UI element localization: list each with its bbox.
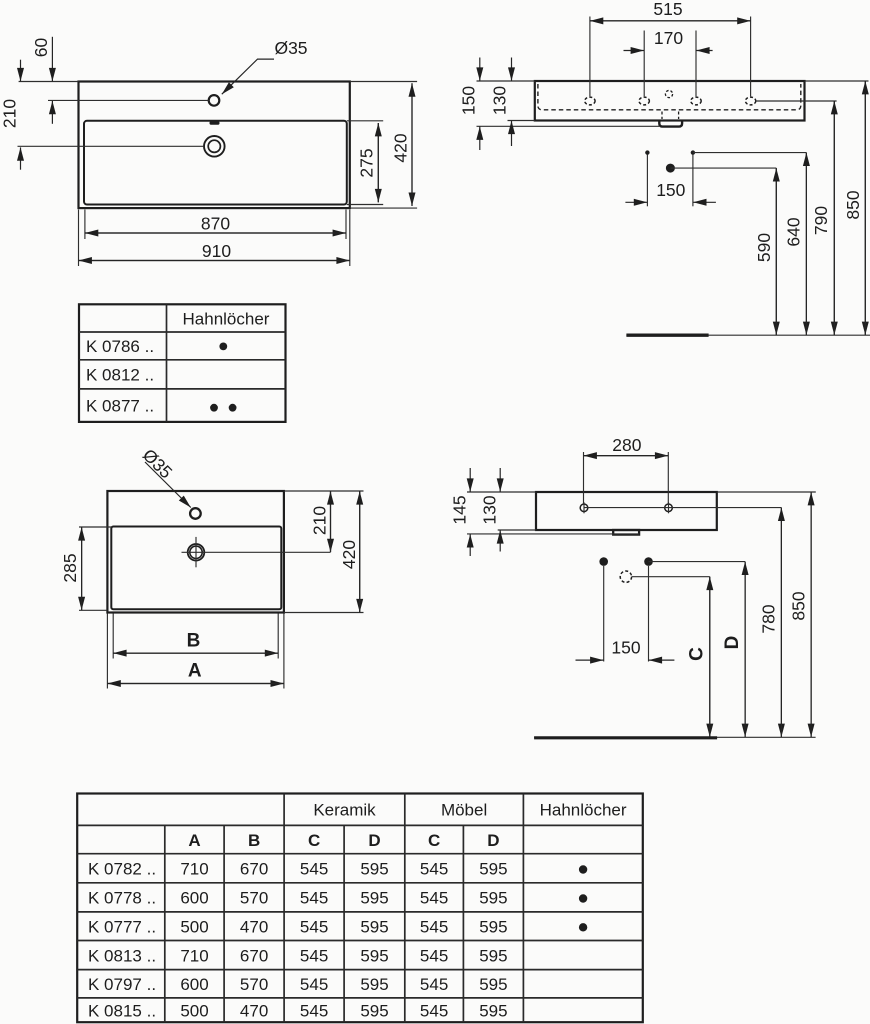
svg-text:K 0797 ..: K 0797 .. [88,975,156,994]
svg-text:595: 595 [360,889,388,908]
svg-text:545: 545 [420,917,448,936]
svg-text:600: 600 [180,889,208,908]
svg-text:A: A [188,831,200,850]
svg-text:850: 850 [789,591,809,620]
svg-text:150: 150 [611,638,640,658]
svg-text:280: 280 [612,435,641,455]
svg-text:420: 420 [339,540,359,569]
svg-text:B: B [187,630,201,651]
svg-text:Ø35: Ø35 [274,38,307,58]
svg-text:545: 545 [300,1001,328,1020]
svg-text:545: 545 [300,889,328,908]
svg-text:285: 285 [60,553,80,582]
svg-text:Möbel: Möbel [441,801,487,820]
svg-text:670: 670 [240,860,268,879]
svg-text:545: 545 [300,946,328,965]
svg-text:595: 595 [479,917,507,936]
svg-text:170: 170 [654,28,683,48]
svg-text:275: 275 [357,148,377,177]
svg-text:K 0813 ..: K 0813 .. [88,946,156,965]
svg-text:545: 545 [420,975,448,994]
svg-text:590: 590 [754,233,774,262]
svg-text:C: C [308,831,320,850]
svg-text:545: 545 [420,889,448,908]
svg-text:470: 470 [240,1001,268,1020]
svg-text:B: B [248,831,260,850]
svg-text:K 0782 ..: K 0782 .. [88,860,156,879]
svg-text:500: 500 [180,1001,208,1020]
svg-text:870: 870 [201,214,230,234]
svg-text:595: 595 [360,975,388,994]
svg-text:710: 710 [180,946,208,965]
svg-text:595: 595 [360,860,388,879]
svg-text:D: D [487,831,499,850]
svg-text:150: 150 [656,180,685,200]
svg-text:Hahnlöcher: Hahnlöcher [183,309,270,328]
svg-text:545: 545 [300,860,328,879]
svg-text:K 0786 ..: K 0786 .. [86,337,154,356]
svg-text:595: 595 [479,889,507,908]
svg-text:600: 600 [180,975,208,994]
svg-text:545: 545 [420,860,448,879]
svg-text:710: 710 [180,860,208,879]
svg-text:K 0877 ..: K 0877 .. [86,397,154,416]
svg-text:545: 545 [420,1001,448,1020]
svg-text:K 0777 ..: K 0777 .. [88,917,156,936]
svg-text:145: 145 [450,495,470,524]
svg-text:545: 545 [300,975,328,994]
svg-text:C: C [687,647,708,661]
svg-text:545: 545 [420,946,448,965]
svg-text:595: 595 [479,946,507,965]
svg-text:500: 500 [180,917,208,936]
svg-text:210: 210 [310,506,330,535]
svg-text:670: 670 [240,946,268,965]
svg-text:595: 595 [360,1001,388,1020]
svg-text:570: 570 [240,975,268,994]
svg-text:570: 570 [240,889,268,908]
svg-text:130: 130 [490,86,510,115]
svg-text:910: 910 [202,241,231,261]
svg-text:K 0815 ..: K 0815 .. [88,1001,156,1020]
svg-text:K 0778 ..: K 0778 .. [88,889,156,908]
svg-text:515: 515 [653,0,682,19]
svg-text:595: 595 [360,917,388,936]
svg-text:640: 640 [784,217,804,246]
svg-text:210: 210 [0,99,20,128]
svg-text:60: 60 [31,38,51,58]
svg-text:850: 850 [843,190,863,219]
svg-text:D: D [722,636,743,650]
svg-text:470: 470 [240,917,268,936]
svg-text:K 0812 ..: K 0812 .. [86,366,154,385]
svg-text:595: 595 [360,946,388,965]
svg-text:150: 150 [459,86,479,115]
svg-text:595: 595 [479,975,507,994]
svg-text:545: 545 [300,917,328,936]
svg-text:Hahnlöcher: Hahnlöcher [540,801,627,820]
svg-text:130: 130 [480,495,500,524]
svg-text:C: C [428,831,440,850]
svg-text:A: A [188,661,202,682]
svg-text:D: D [368,831,380,850]
svg-text:790: 790 [811,206,831,235]
svg-text:595: 595 [479,1001,507,1020]
svg-text:Keramik: Keramik [313,801,376,820]
svg-text:780: 780 [759,604,779,633]
svg-text:595: 595 [479,860,507,879]
svg-text:420: 420 [391,133,411,162]
